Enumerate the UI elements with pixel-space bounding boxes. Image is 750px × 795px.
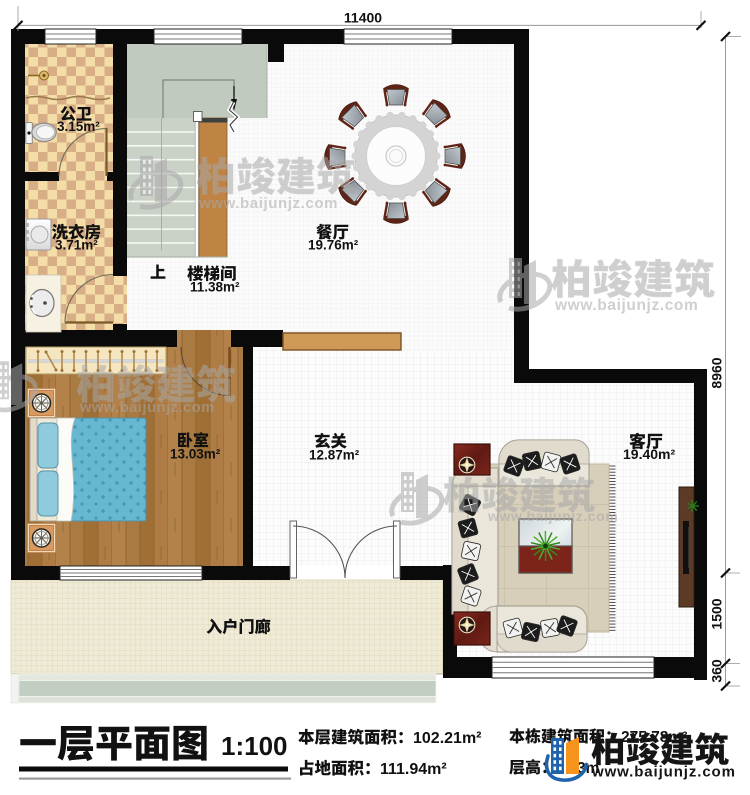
svg-text:3.15m²: 3.15m²: [57, 119, 100, 134]
svg-text:360: 360: [709, 659, 725, 683]
svg-text:102.21m²: 102.21m²: [413, 730, 482, 747]
svg-text:1:100: 1:100: [221, 731, 288, 761]
svg-text:19.76m²: 19.76m²: [308, 238, 359, 253]
svg-text:11400: 11400: [344, 10, 382, 26]
svg-text:www.baijunjz.com: www.baijunjz.com: [554, 297, 698, 314]
svg-text:12.87m²: 12.87m²: [309, 448, 360, 463]
svg-text:3.71m²: 3.71m²: [55, 238, 98, 253]
svg-text:1500: 1500: [709, 598, 725, 629]
svg-text:19.40m²: 19.40m²: [623, 446, 675, 462]
svg-text:8960: 8960: [709, 357, 725, 388]
svg-text:www.baijunjz.com: www.baijunjz.com: [198, 195, 338, 212]
svg-text:www.baijunjz.com: www.baijunjz.com: [487, 508, 618, 524]
svg-text:11.38m²: 11.38m²: [190, 280, 240, 295]
svg-text:www.baijunjz.com: www.baijunjz.com: [591, 764, 736, 781]
svg-text:13.03m²: 13.03m²: [170, 447, 221, 462]
svg-text:111.94m²: 111.94m²: [380, 761, 447, 778]
svg-text:www.baijunjz.com: www.baijunjz.com: [79, 400, 215, 416]
